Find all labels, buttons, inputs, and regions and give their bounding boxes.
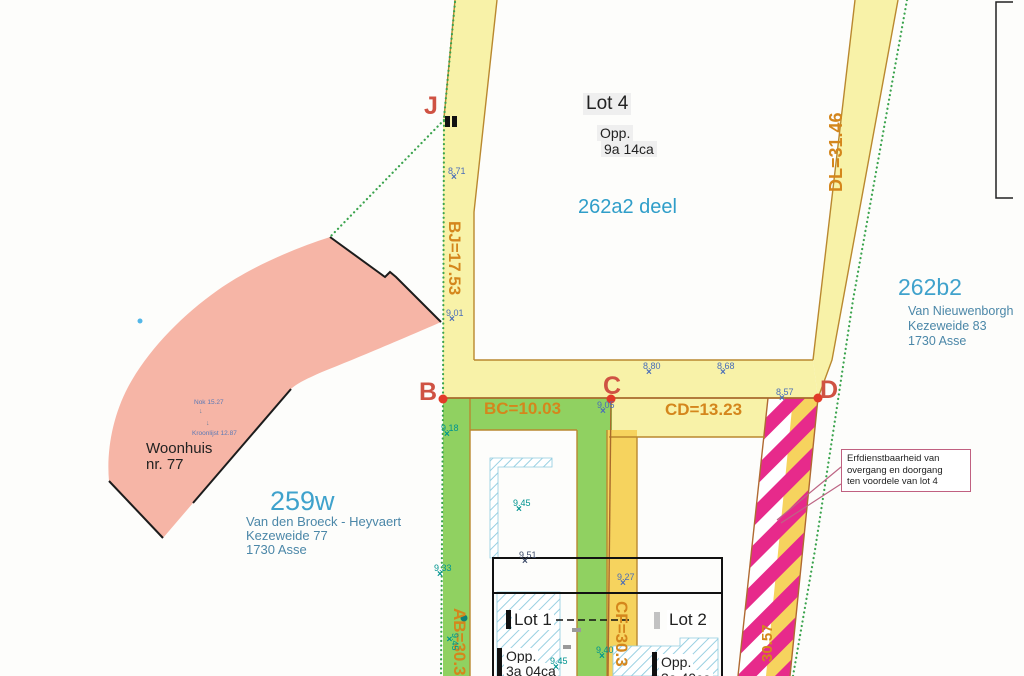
point-marker-icon: × — [444, 636, 452, 651]
lot4-title: Lot 4 — [583, 93, 631, 115]
edge-label-cf: CF=30.3 — [611, 601, 631, 667]
point-marker-icon: × — [599, 653, 614, 661]
lot1-opp-label: Opp. — [504, 648, 538, 664]
callout-line3: ten voordele van lot 4 — [847, 476, 965, 488]
point-label-d: D — [820, 376, 838, 405]
spot-height-9-05: 9.05 × — [597, 401, 615, 416]
house-label-line2: nr. 77 — [146, 456, 184, 473]
parcel-262b2-street: Kezeweide 83 — [908, 319, 987, 333]
spot-height-9-33: 9.33 × — [434, 564, 452, 579]
point-label-b: B — [419, 378, 437, 407]
parcel-262b2-number: 262b2 — [898, 274, 962, 301]
point-marker-icon: × — [451, 174, 466, 182]
servitude-callout: Erfdienstbaarheid van overgang en doorga… — [841, 449, 971, 492]
point-b-dot — [439, 395, 448, 404]
gray-tick-2 — [563, 645, 571, 649]
gray-tick-1 — [572, 628, 581, 632]
spot-height-9-27: 9.27 × — [617, 573, 635, 588]
callout-line1: Erfdienstbaarheid van — [847, 453, 965, 465]
spot-height-9-51: 9.51 × — [519, 551, 537, 566]
spot-height-9-45b: 9.45 × — [550, 657, 568, 672]
plan-drawing — [0, 0, 1024, 676]
point-marker-icon: × — [720, 369, 735, 377]
strip-bd-yellow — [443, 360, 818, 398]
point-j-monument-icon2 — [452, 116, 457, 127]
spot-height-9-01: 9.01 × — [446, 309, 464, 324]
lot2-title: Lot 2 — [667, 610, 709, 630]
roof-arrow-icon-1: ↓ — [199, 408, 203, 415]
lot2-opp-bar — [652, 652, 657, 676]
edge-label-dl: DL=31.46 — [826, 112, 847, 192]
lot2-area: 3a 40ca — [659, 670, 713, 676]
spot-height-9-40: 9.40 × — [596, 646, 614, 661]
point-marker-icon: × — [779, 395, 794, 403]
point-marker-icon: × — [444, 431, 459, 439]
house-label-line1: Woonhuis — [146, 440, 212, 457]
blue-speck — [138, 319, 143, 324]
point-marker-icon: × — [646, 369, 661, 377]
lot1-opp-bar — [497, 648, 502, 676]
spot-height-8-57: 8.57 × — [776, 388, 794, 403]
edge-label-bj: BJ=17.53 — [444, 221, 464, 295]
point-marker-icon: × — [516, 506, 531, 514]
point-j-monument-icon — [445, 116, 450, 127]
spot-height-8-68: 8.68 × — [717, 362, 735, 377]
neighbour-frame-bracket — [996, 2, 1013, 198]
lot1-title-bar — [506, 610, 511, 629]
lot4-parcel-number: 262a2 deel — [578, 196, 677, 219]
lot2-title-bar — [654, 612, 660, 629]
spot-height-9-45c: 9.45 × — [444, 633, 459, 651]
servitude-strip-magenta-hatch — [738, 398, 818, 676]
cadastral-plan-canvas: J B C D BC=10.03 CD=13.23 BJ=17.53 DL=31… — [0, 0, 1024, 676]
roof-eaves-note: Kroonlijst 12.87 — [192, 430, 237, 437]
point-marker-icon: × — [553, 664, 568, 672]
lot2-opp-label: Opp. — [659, 654, 693, 670]
spot-height-9-18: 9.18 × — [441, 424, 459, 439]
lot4-area: 9a 14ca — [601, 141, 657, 157]
roof-arrow-icon-2: ↓ — [206, 420, 210, 427]
strip-f-green — [577, 430, 607, 676]
point-label-c: C — [603, 372, 621, 401]
point-marker-icon: × — [437, 571, 452, 579]
parcel-259w-owner: Van den Broeck - Heyvaert — [246, 515, 401, 529]
point-marker-icon: × — [620, 580, 635, 588]
boundary-dotted-diagonal — [331, 120, 444, 236]
edge-label-df: 30.57 — [759, 624, 776, 662]
point-marker-icon: × — [449, 316, 464, 324]
edge-label-bc: BC=10.03 — [484, 399, 561, 419]
strip-dl-yellow — [813, 0, 898, 398]
parcel-262b2-owner: Van Nieuwenborgh — [908, 304, 1013, 318]
parcel-259w-street: Kezeweide 77 — [246, 529, 328, 543]
roof-ridge-note: Nok 15.27 — [194, 399, 224, 406]
spot-height-8-80: 8.80 × — [643, 362, 661, 377]
parcel-259w-number: 259w — [270, 486, 335, 517]
lot4-opp-label: Opp. — [597, 125, 633, 141]
parcel-262b2-city: 1730 Asse — [908, 334, 966, 348]
lot1-title: Lot 1 — [512, 610, 554, 630]
point-marker-icon: × — [600, 408, 615, 416]
spot-height-8-71: 8.71 × — [448, 167, 466, 182]
spot-height-9-45a: 9.45 × — [513, 499, 531, 514]
point-marker-icon: × — [522, 558, 537, 566]
callout-line2: overgang en doorgang — [847, 465, 965, 477]
edge-label-cd: CD=13.23 — [665, 400, 742, 420]
point-label-j: J — [424, 92, 438, 121]
parcel-259w-city: 1730 Asse — [246, 543, 307, 557]
